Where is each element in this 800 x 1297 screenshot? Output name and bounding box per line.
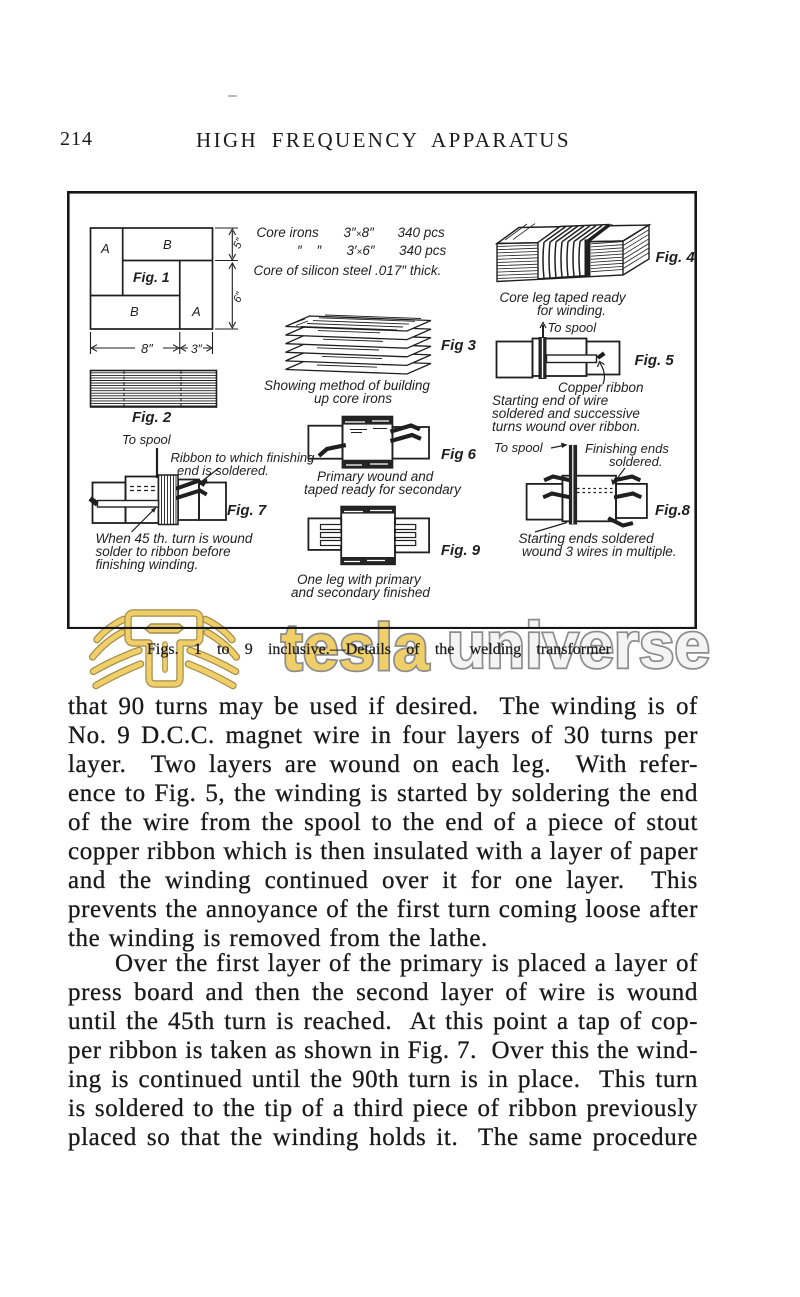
svg-text:To spool: To spool [548,320,598,335]
svg-text:turns wound over ribbon.: turns wound over ribbon. [492,419,641,434]
svg-text:finishing winding.: finishing winding. [96,557,199,572]
svg-text:8″: 8″ [141,341,153,356]
svg-text:B: B [130,304,139,319]
svg-text:end is soldered.: end is soldered. [177,463,269,478]
svg-text:for winding.: for winding. [537,303,606,318]
svg-text:3″: 3″ [191,342,203,356]
svg-text:To spool: To spool [122,432,172,447]
svg-text:Fig. 9: Fig. 9 [441,542,481,559]
svg-text:Core of silicon steel .017″ th: Core of silicon steel .017″ thick. [254,263,442,278]
svg-text:5″: 5″ [231,236,247,251]
svg-text:6″: 6″ [231,290,247,305]
svg-text:up core irons: up core irons [314,391,392,406]
svg-text:soldered.: soldered. [609,454,662,469]
svg-text:Fig. 7: Fig. 7 [227,502,267,519]
svg-text:Fig 6: Fig 6 [441,446,477,463]
svg-text:To spool: To spool [494,440,544,455]
svg-text:A: A [100,241,110,256]
svg-text:Fig. 4: Fig. 4 [656,249,696,266]
svg-text:Fig. 2: Fig. 2 [132,409,172,426]
svg-text:″″3′×6″340 pcs: ″″3′×6″340 pcs [297,243,447,258]
svg-text:A: A [191,304,201,319]
svg-text:Fig 3: Fig 3 [441,337,477,354]
svg-text:Fig. 1: Fig. 1 [133,269,170,285]
svg-text:and secondary finished: and secondary finished [291,585,430,600]
svg-text:B: B [163,237,172,252]
svg-text:Fig.8: Fig.8 [655,502,691,519]
svg-text:Fig. 5: Fig. 5 [635,352,675,369]
svg-text:taped ready for secondary: taped ready for secondary [304,482,462,497]
svg-text:Core irons3″×8″340 pcs: Core irons3″×8″340 pcs [257,225,446,240]
svg-text:wound 3 wires in multiple.: wound 3 wires in multiple. [522,544,677,559]
